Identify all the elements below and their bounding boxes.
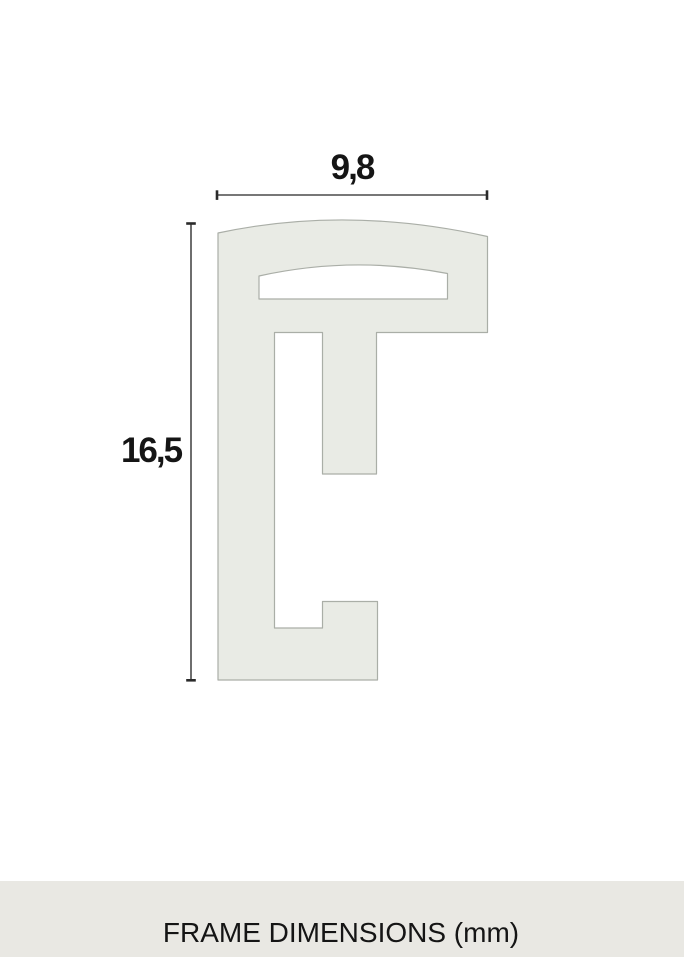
svg-text:FRAME DIMENSIONS (mm): FRAME DIMENSIONS (mm) <box>163 917 519 948</box>
svg-text:16,5: 16,5 <box>121 431 183 470</box>
svg-text:9,8: 9,8 <box>331 148 375 187</box>
